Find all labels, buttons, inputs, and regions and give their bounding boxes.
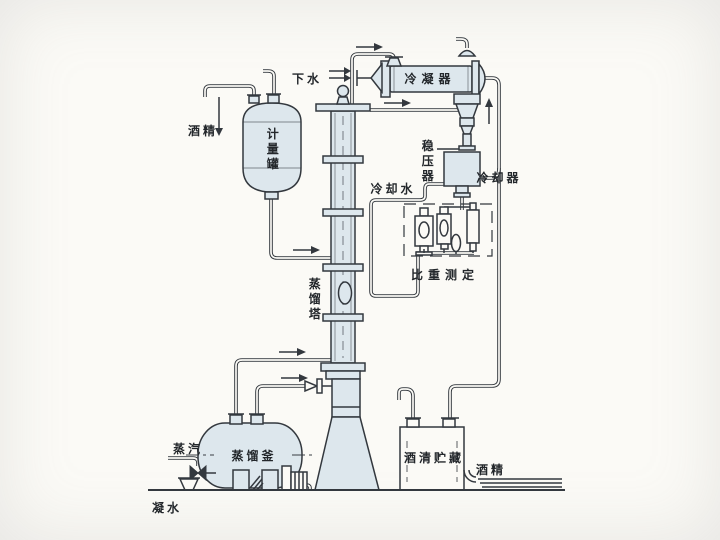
bellows-reducer [456,104,478,118]
stabilizer-flange [459,146,475,150]
flow-arrow-right [356,43,383,51]
column-flange [323,209,363,216]
pipe-metering-vent [263,71,274,95]
hydrometer-stub [470,203,476,210]
outlet-elbow [469,470,476,477]
sight-glass-a-window [419,222,429,238]
metering-tank-left-nozzle [249,96,259,103]
flow-arrow-right [384,99,411,107]
column-flange [323,314,363,321]
bellows-ring [460,118,474,126]
condenser-head-dome [459,51,475,57]
metering-tank-bottom-nozzle [265,192,278,199]
condenser-right-head [472,61,479,97]
label-down-water: 下水 [292,72,322,86]
cooler-body [444,152,480,186]
vapor-flow-arrow [279,348,306,356]
pipe-storage-gooseneck-vent [399,389,413,419]
hydrometer-bottom [470,243,476,251]
flow-cell-bottom [441,244,448,249]
down-water-arrow [329,74,351,82]
cooler-bottom-flange [454,193,470,197]
float-bulb [452,235,461,252]
column-flange [323,156,363,163]
column-cap-ball [338,86,349,97]
label-alcohol-feed: 酒精 [188,124,218,138]
kettle-nozzle [251,415,263,424]
label-cooler: 冷却器 [476,171,521,185]
label-alcohol-storage: 酒清贮藏 [404,451,464,465]
condenser-inlet-cone [371,64,382,92]
steam-trap [180,479,198,490]
feed-flow-arrow [293,246,320,254]
outlet-elbow [464,470,476,482]
bellows-top [454,94,480,104]
sight-glass [339,282,352,304]
label-cooling-water: 冷却水 [370,182,415,196]
down-water-arrow [329,67,351,75]
kettle-nozzle [230,415,242,424]
label-condensate-water: 凝水 [152,501,182,515]
pump-block [282,466,291,490]
cooler-bottom-stub [456,186,468,193]
condenser-right-cap [479,64,485,94]
vapor-flow-arrow [281,374,308,382]
condenser-top-nozzle [387,58,401,66]
pipe-steam-inlet [168,458,198,466]
flow-arrow-up [485,98,493,124]
label-steam: 蒸汽 [173,442,203,456]
neck-inlet-flange [317,379,322,393]
storage-tank-nozzle [443,419,455,427]
column-base-flange [326,371,360,379]
gravity-instrument-panel [404,203,492,256]
label-metering-tank: 计量罐 [265,128,279,173]
column-neck [332,379,360,417]
sight-glass-a-stub [420,208,428,216]
pipe-kettle-vapor-lower [257,386,305,415]
column-flange [323,264,363,271]
storage-tank-nozzle [407,419,419,427]
column-base-flange [321,363,365,371]
column-cap [337,97,349,104]
metering-tank-right-nozzle [268,95,279,103]
pipe-condenser-vent [456,39,467,48]
pipe-metering-to-column-feed [271,198,331,258]
label-distillation-kettle: 蒸馏釜 [231,449,276,463]
label-distillation-tower: 蒸馏塔 [307,278,321,323]
diagram-canvas [0,0,720,540]
label-condenser: 冷凝器 [404,72,455,86]
bellows-reducer-small [461,126,473,134]
column-top-flange [316,104,370,111]
hydrometer-cylinder [467,210,479,243]
label-alcohol-out: 酒精 [476,463,506,477]
kettle-saddle [233,470,249,490]
flow-cell-window [440,220,448,236]
stabilizer-pipe [463,134,471,146]
pipe-alcohol-feed-inlet [205,86,254,97]
label-gravity-measurement: 比重测定 [411,268,479,282]
neck-inlet-valve [305,381,317,391]
kettle-saddle [262,470,278,490]
column-skirt [315,417,379,490]
label-pressure-stabilizer: 稳压器 [420,140,434,185]
process-flow-diagram: 下水 冷凝器 酒精 计量罐 稳压器 冷却水 冷却器 比重测定 蒸馏塔 蒸汽 蒸馏… [0,0,720,540]
flow-cell-stub [440,207,448,214]
